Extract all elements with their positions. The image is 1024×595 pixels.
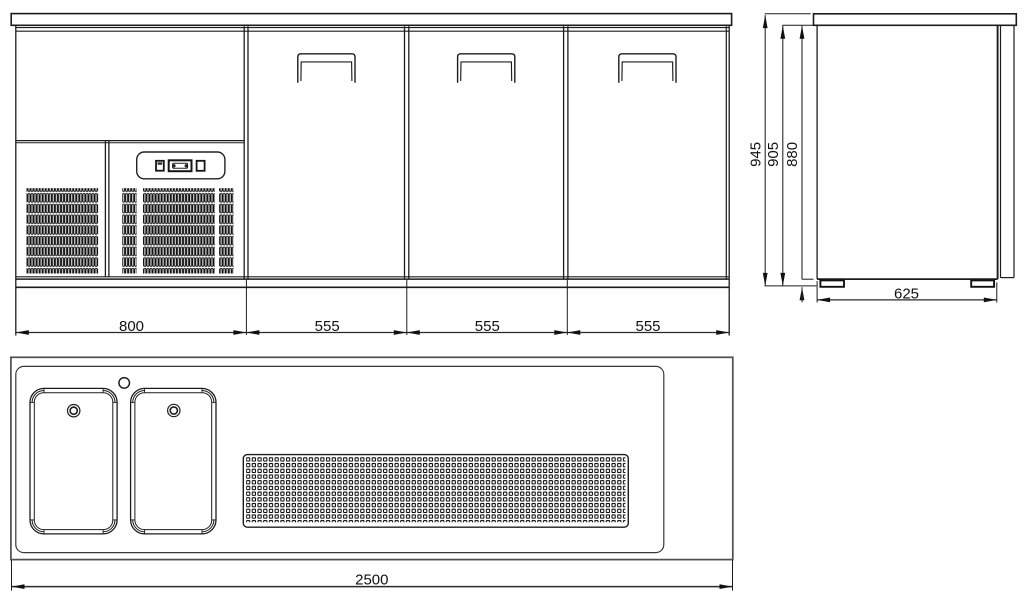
svg-text:555: 555 <box>475 318 500 335</box>
svg-text:905: 905 <box>765 142 782 167</box>
svg-text:880: 880 <box>784 142 801 167</box>
svg-text:945: 945 <box>747 142 764 167</box>
svg-text:625: 625 <box>894 286 919 303</box>
svg-text:555: 555 <box>635 318 660 335</box>
svg-text:800: 800 <box>119 318 144 335</box>
svg-text:555: 555 <box>315 318 340 335</box>
svg-text:2500: 2500 <box>355 572 388 589</box>
